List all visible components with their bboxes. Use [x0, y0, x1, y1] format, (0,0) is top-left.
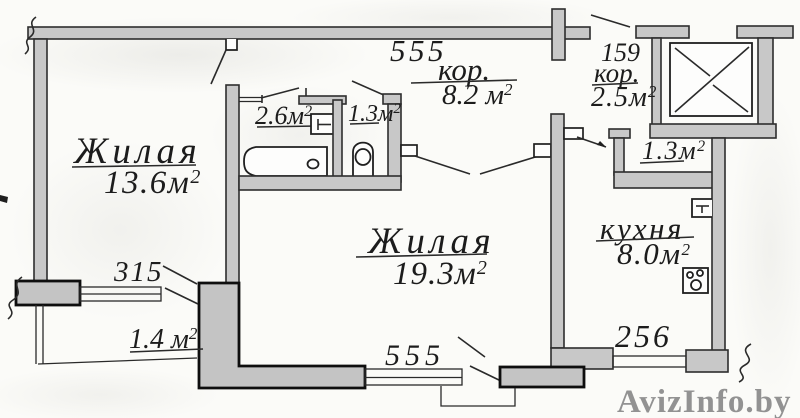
svg-text:315: 315: [113, 256, 164, 288]
svg-text:2.5м2: 2.5м2: [591, 82, 657, 113]
svg-text:19.3м2: 19.3м2: [393, 256, 488, 292]
svg-text:13.6м2: 13.6м2: [104, 165, 202, 201]
svg-text:AvizInfo.by: AvizInfo.by: [617, 384, 792, 418]
svg-text:256: 256: [615, 318, 672, 354]
svg-text:555: 555: [385, 339, 445, 372]
svg-text:8.0м2: 8.0м2: [617, 236, 692, 271]
svg-text:8.2 м2: 8.2 м2: [442, 79, 513, 111]
